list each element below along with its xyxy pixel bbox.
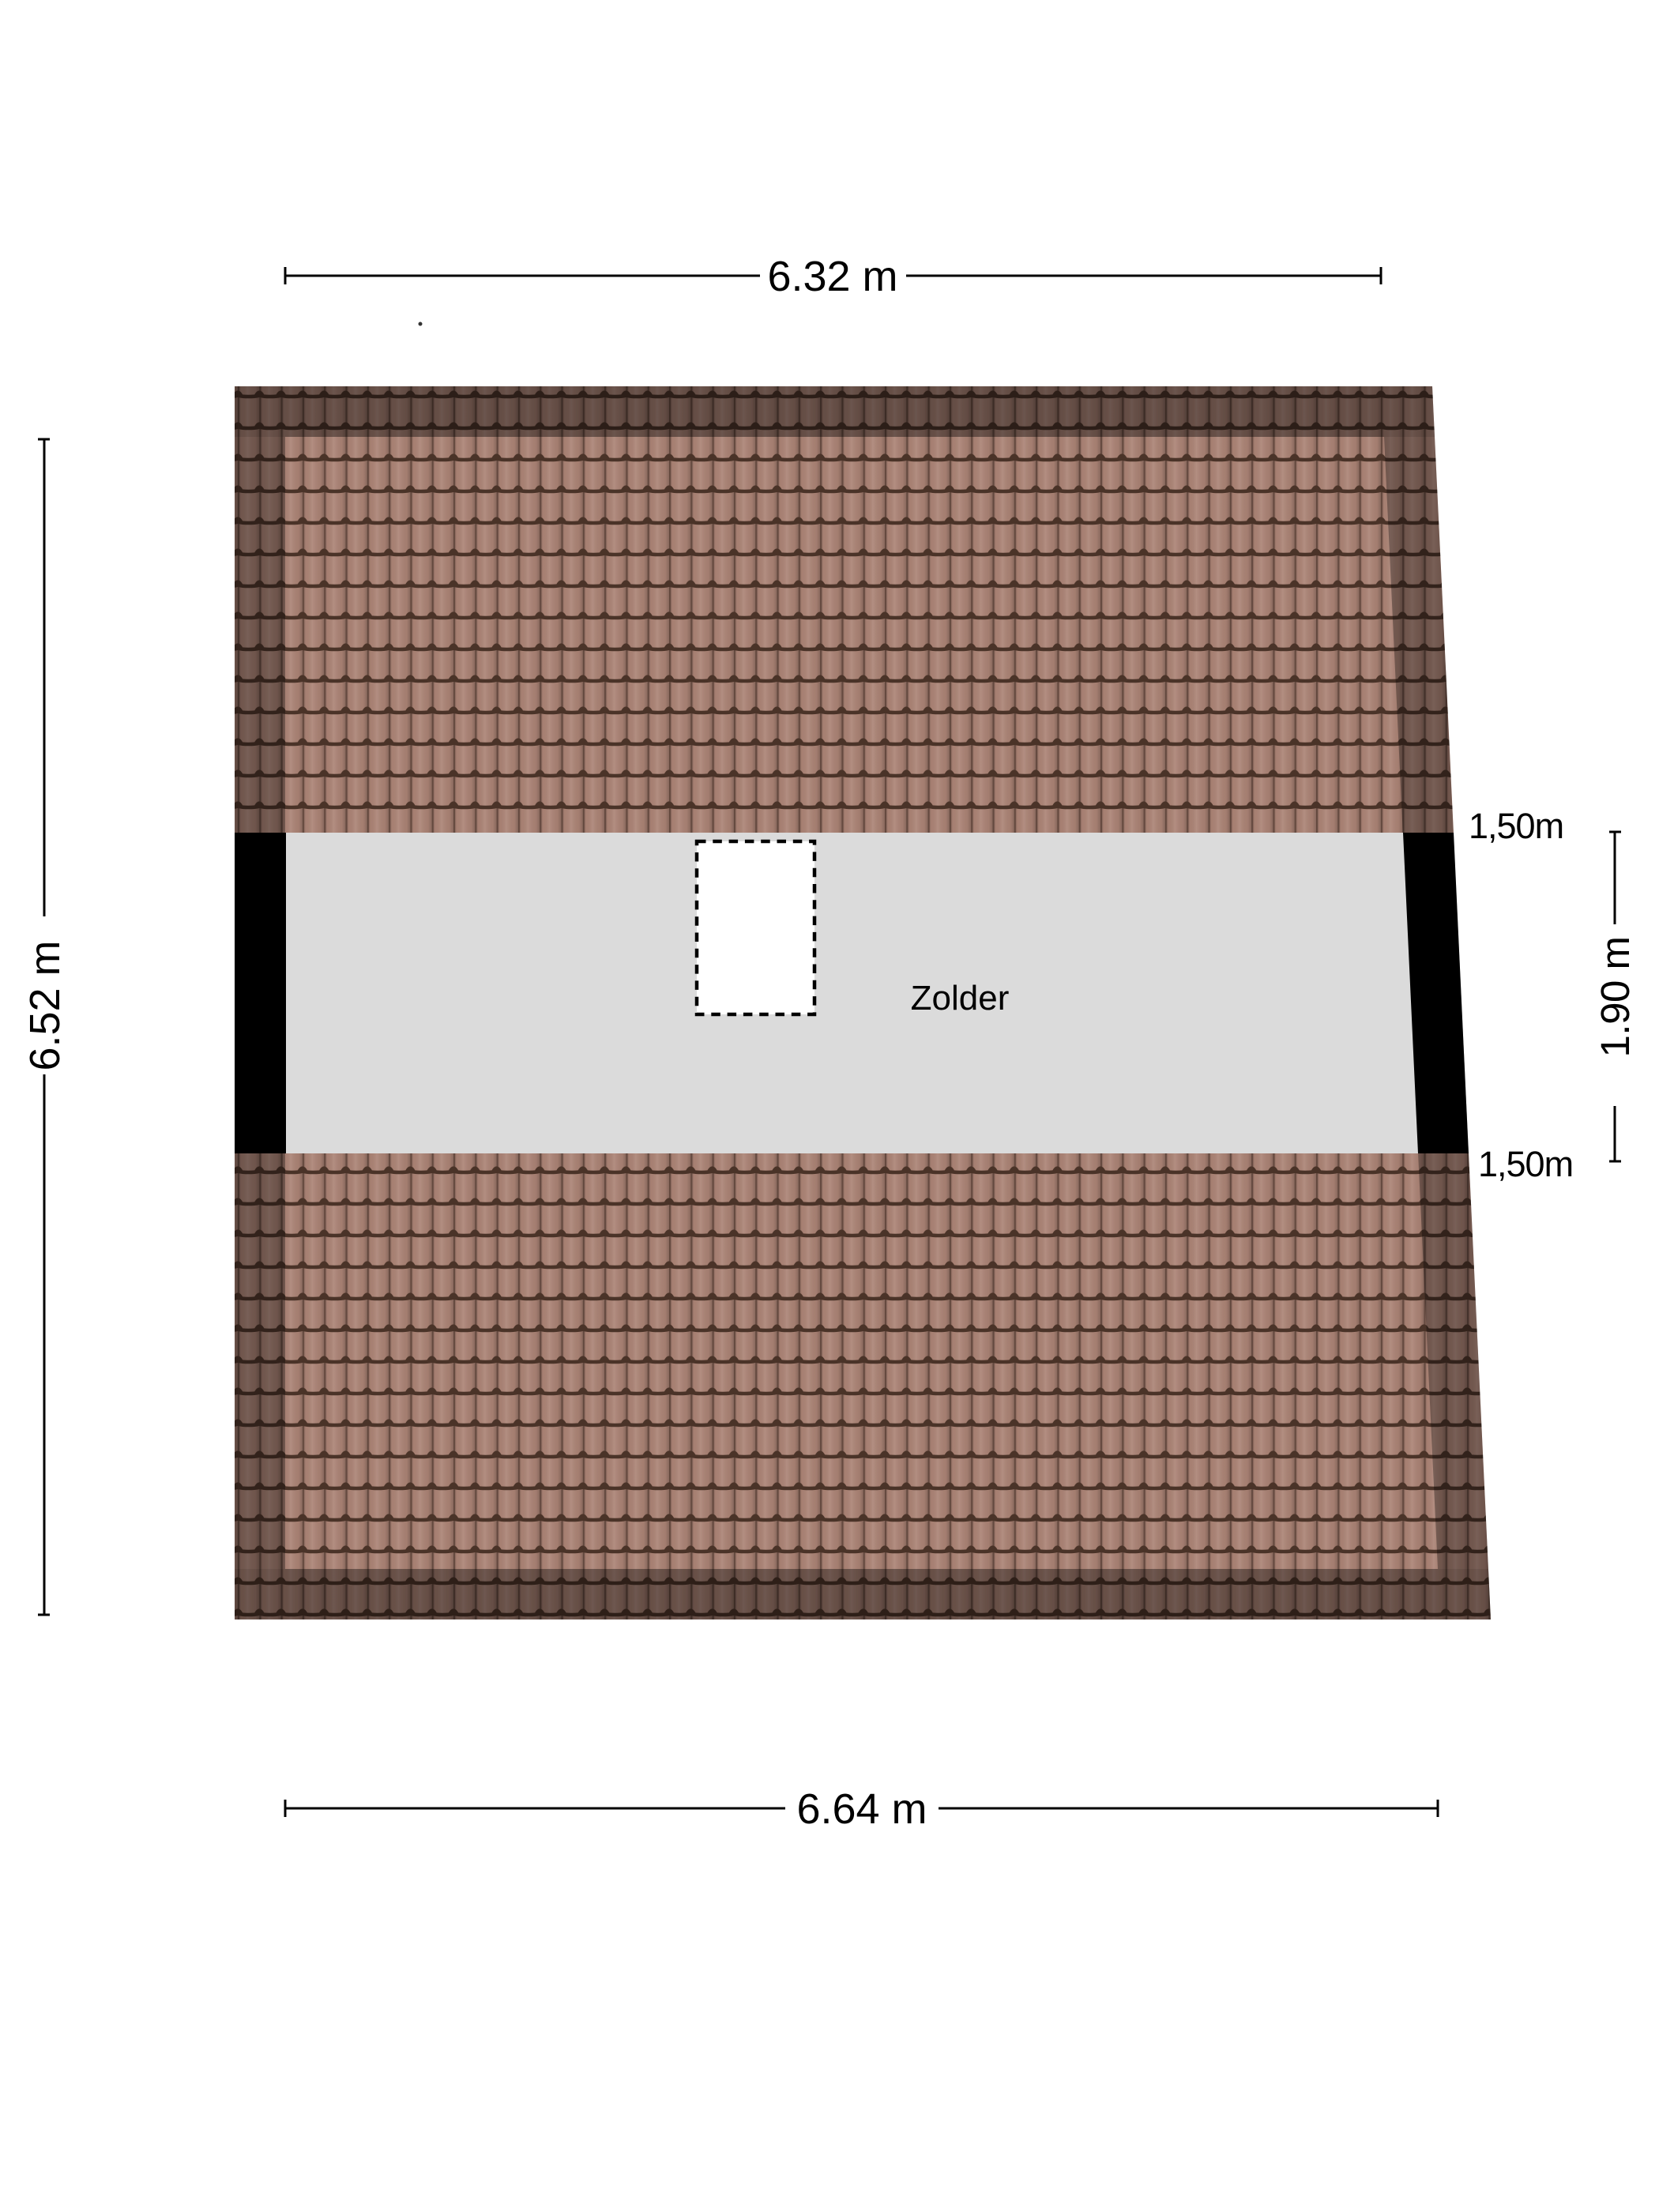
svg-text:6.32 m: 6.32 m	[767, 253, 897, 300]
svg-text:6.52 m: 6.52 m	[21, 940, 69, 1070]
svg-text:1.90 m: 1.90 m	[1593, 937, 1638, 1058]
svg-text:6.64 m: 6.64 m	[796, 1785, 927, 1833]
svg-text:Zolder: Zolder	[911, 979, 1010, 1018]
svg-text:1,50m: 1,50m	[1469, 806, 1563, 846]
svg-text:1,50m: 1,50m	[1478, 1144, 1573, 1184]
